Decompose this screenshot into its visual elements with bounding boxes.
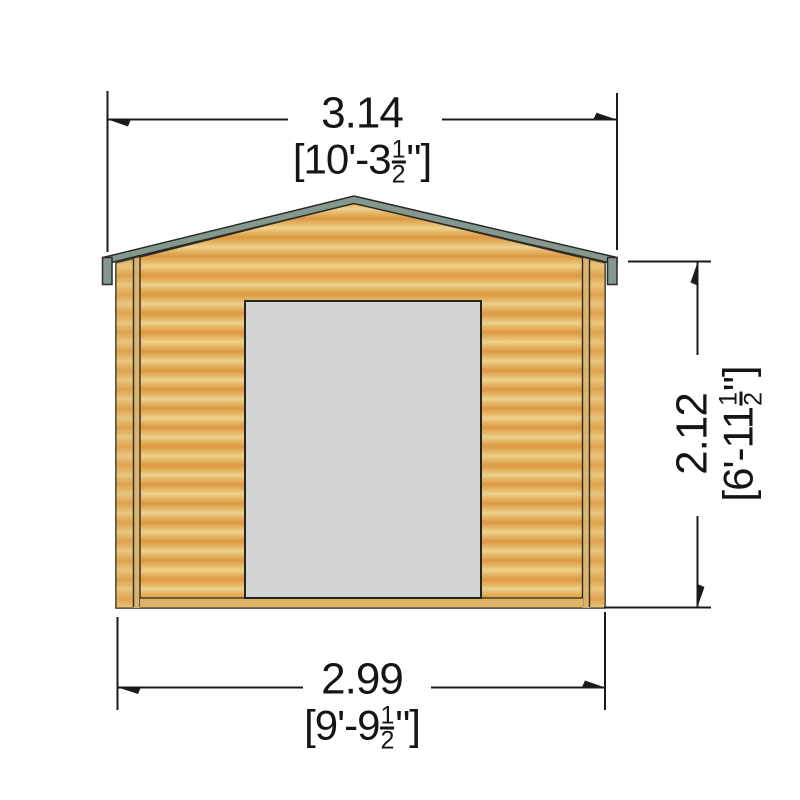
imperial-open: [10'-3 xyxy=(293,136,391,182)
dimension-width-top: 3.14 [10'-312"] xyxy=(293,92,431,183)
dimension-height-right: 2.12 [6'-1112"] xyxy=(671,366,762,501)
imperial-open: [9'-9 xyxy=(304,702,379,748)
dimension-width-bottom: 2.99 [9'-912"] xyxy=(304,658,420,749)
fraction: 12 xyxy=(392,139,406,186)
dimension-metric-value: 2.99 xyxy=(304,658,420,702)
fraction-denominator: 2 xyxy=(392,161,406,186)
roof-drip-end-left xyxy=(103,258,113,285)
drawing-canvas: 3.14 [10'-312"] 2.99 [9'-912"] 2.12 [6'-… xyxy=(0,0,800,800)
bottom-dim-arrow-left xyxy=(118,687,141,694)
imperial-close: "] xyxy=(715,366,761,391)
right-dim-arrow-bottom xyxy=(698,584,705,607)
base-band xyxy=(140,598,583,608)
right-dim-arrow-top xyxy=(691,263,698,286)
dimension-imperial-value: [10'-312"] xyxy=(293,136,431,183)
imperial-close: "] xyxy=(395,702,420,748)
roof-drip-end-right xyxy=(608,258,618,285)
fraction: 12 xyxy=(718,392,765,406)
left-corner-board xyxy=(116,250,134,610)
dimension-imperial-value: [9'-912"] xyxy=(304,702,420,749)
fraction-denominator: 2 xyxy=(740,392,765,406)
bottom-dim-arrow-right xyxy=(582,681,605,688)
right-corner-board xyxy=(590,250,606,610)
fraction-numerator: 1 xyxy=(380,705,394,727)
fraction-numerator: 1 xyxy=(392,139,406,161)
fraction-numerator: 1 xyxy=(718,392,740,406)
top-dim-arrow-left xyxy=(108,119,131,127)
imperial-open: [6'-11 xyxy=(715,407,761,502)
fraction: 12 xyxy=(380,705,394,752)
right-corner-strip xyxy=(583,250,590,610)
top-dim-arrow-right xyxy=(594,113,617,120)
left-corner-strip xyxy=(134,250,141,610)
fraction-denominator: 2 xyxy=(380,727,394,752)
door-panel xyxy=(245,301,481,598)
dimension-metric-value: 2.12 xyxy=(671,366,715,501)
dimension-metric-value: 3.14 xyxy=(293,92,431,136)
dimension-imperial-value: [6'-1112"] xyxy=(715,366,762,501)
imperial-close: "] xyxy=(407,136,432,182)
